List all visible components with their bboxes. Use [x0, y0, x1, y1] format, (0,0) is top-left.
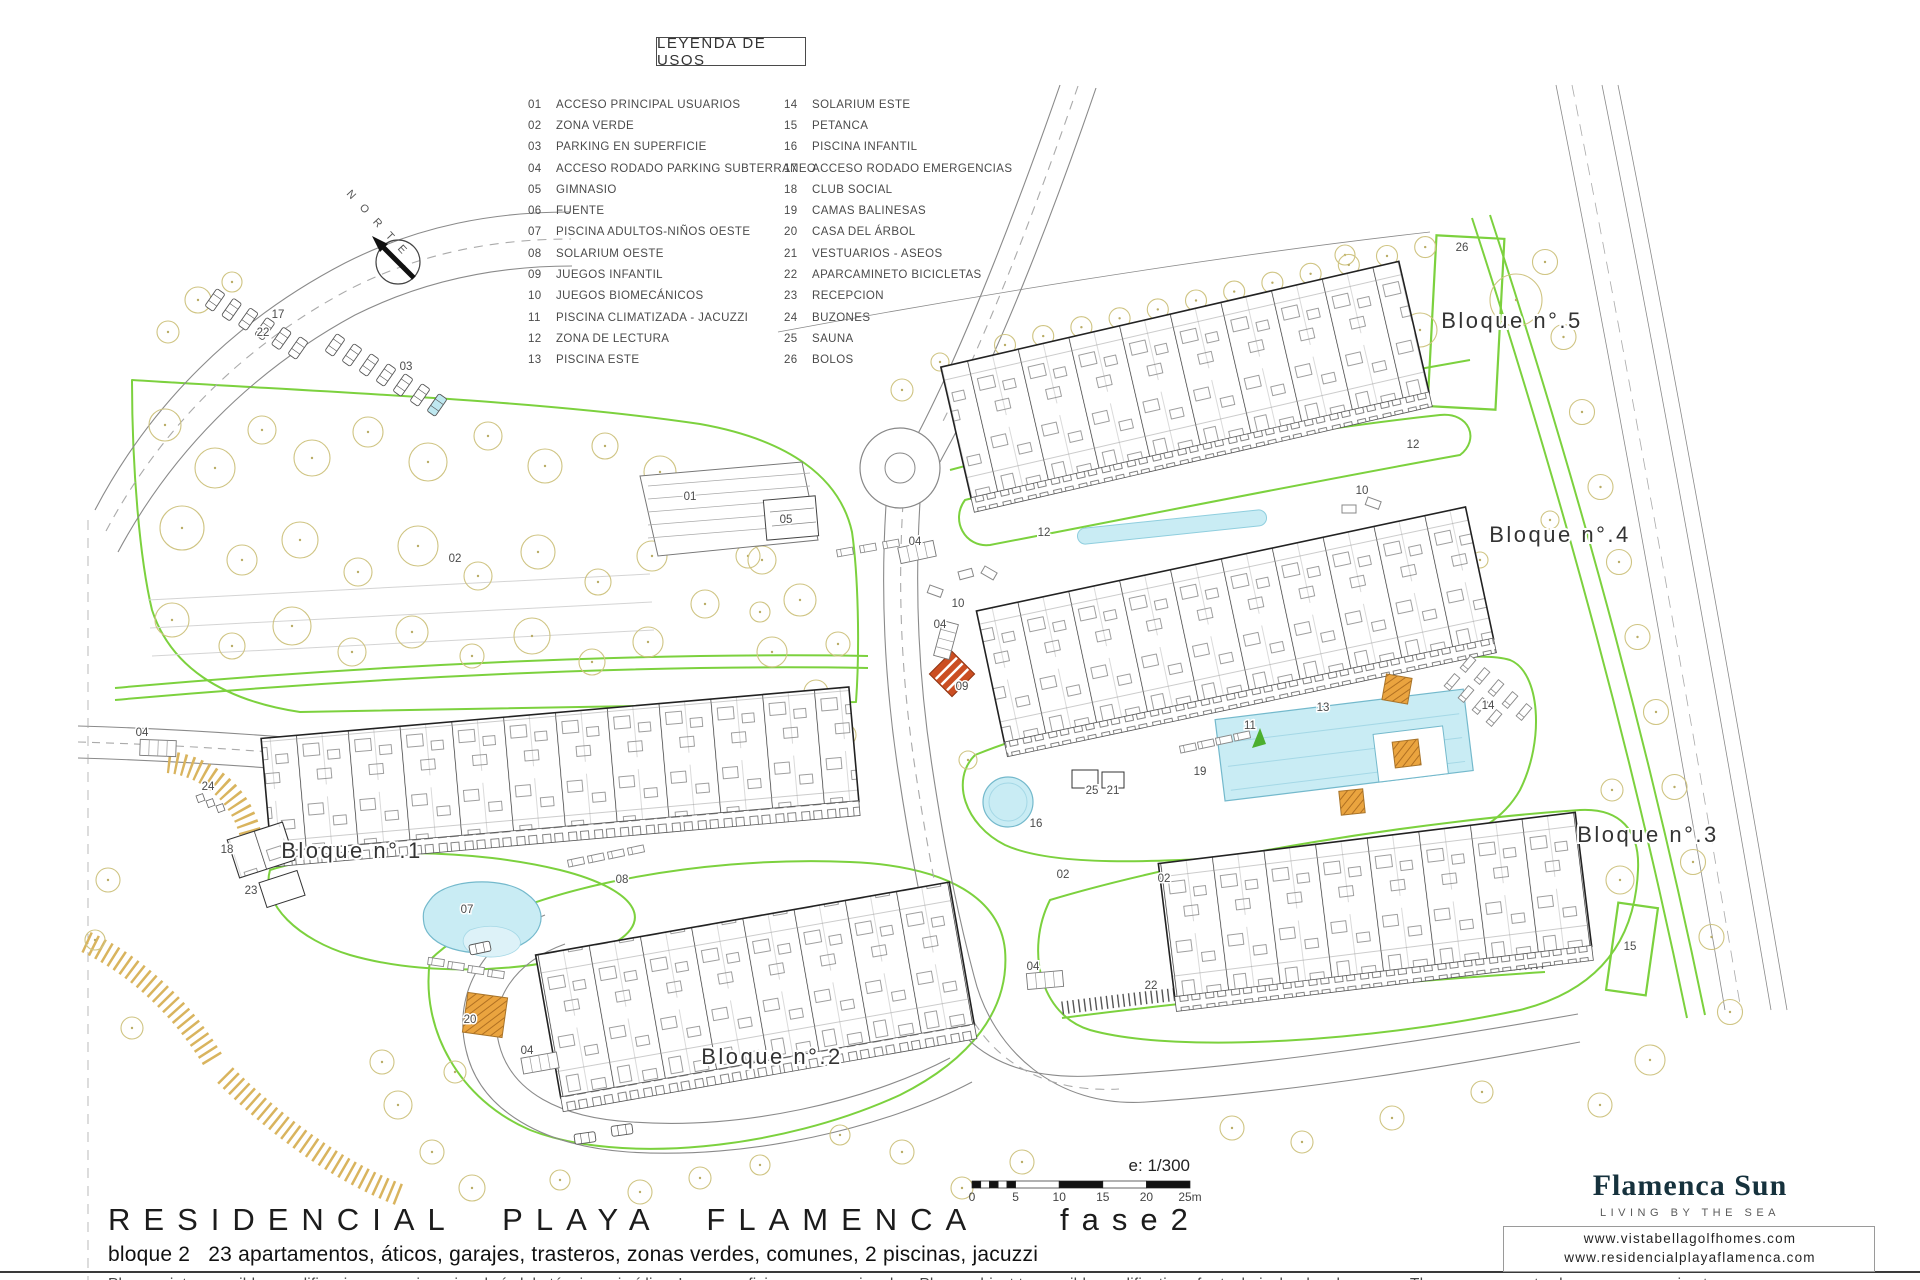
project-title: RESIDENCIAL PLAYA FLAMENCA: [108, 1202, 979, 1238]
road: [118, 266, 572, 552]
plan-shape: [488, 969, 505, 978]
legend-item: 07PISCINA ADULTOS-NIÑOS OESTE: [528, 222, 816, 243]
legend-item-number: 08: [528, 248, 556, 260]
lounger-icon: [627, 845, 644, 855]
garden-row-line: [148, 574, 650, 600]
plan-shape: [381, 1061, 383, 1063]
legend-item-number: 04: [528, 163, 556, 175]
tree-icon: [353, 417, 383, 447]
tree-icon: [1533, 250, 1558, 275]
buzones-icon: [216, 804, 225, 813]
lounger-icon: [488, 969, 505, 978]
plan-shape: [376, 364, 396, 387]
plan-shape: [1021, 1161, 1023, 1163]
plan-shape: [1481, 1091, 1483, 1093]
plan-shape: [1516, 704, 1532, 721]
legend-col-right: 14SOLARIUM ESTE15PETANCA16PISCINA INFANT…: [784, 94, 1012, 371]
tree-icon: [1588, 475, 1613, 500]
legend-item-label: PISCINA ESTE: [556, 354, 639, 366]
plan-shape: [1301, 1141, 1303, 1143]
plan-shape: [1271, 282, 1273, 284]
legend-item: 25SAUNA: [784, 328, 1012, 349]
brand-tagline: LIVING BY THE SEA: [1500, 1207, 1880, 1219]
legend-item-number: 10: [528, 290, 556, 302]
garden-row-line: [150, 602, 652, 628]
legend-item-number: 26: [784, 354, 812, 366]
buzones-icon: [206, 799, 215, 808]
logo-petal: [1649, 1095, 1683, 1130]
plan-shape: [131, 1027, 133, 1029]
plan-shape: [1692, 861, 1694, 863]
plan-shape: [197, 299, 199, 301]
tree-icon: [474, 422, 502, 450]
sun-swirl-logo-icon: [1630, 1055, 1750, 1167]
tree-icon: [528, 449, 562, 483]
green-zone-boundary: [115, 655, 868, 688]
logo-petal: [1635, 1071, 1677, 1121]
plan-shape: [351, 651, 353, 653]
legend-item-number: 15: [784, 120, 812, 132]
tree-icon: [1415, 237, 1436, 258]
plan-shape: [427, 461, 429, 463]
plan-shape: [1197, 739, 1214, 749]
plan-marker: 02: [1158, 873, 1171, 885]
plan-shape: [704, 603, 706, 605]
plan-shape: [961, 1187, 963, 1189]
legend-item-label: SOLARIUM OESTE: [556, 248, 664, 260]
plan-marker: 03: [400, 361, 413, 373]
lounger-icon: [1474, 668, 1490, 685]
legend-item: 17ACCESO RODADO EMERGENCIAS: [784, 158, 1012, 179]
plan-shape: [759, 611, 761, 613]
road: [1572, 85, 1741, 1010]
plan-marker: 22: [1145, 980, 1158, 992]
plan-shape: [288, 337, 308, 360]
exercise-equipment-icon: [1365, 497, 1381, 509]
plan-shape: [1391, 1117, 1393, 1119]
plan-marker: 10: [952, 598, 965, 610]
legend-item-label: BOLOS: [812, 354, 854, 366]
plan-shape: [591, 661, 593, 663]
legend-item-label: FUENTE: [556, 205, 604, 217]
legend-item-number: 14: [784, 99, 812, 111]
logo-petal: [1680, 1117, 1714, 1152]
pool-infantil: [983, 777, 1033, 827]
plan-shape: [1309, 273, 1311, 275]
lounger-icon: [883, 539, 900, 549]
logo-petal: [1656, 1123, 1710, 1167]
tree-icon: [757, 637, 787, 667]
tree-icon: [585, 569, 611, 595]
plan-marker: 14: [1482, 700, 1495, 712]
plan-shape: [1444, 674, 1460, 691]
plan-shape: [1619, 879, 1621, 881]
legend-item-label: VESTUARIOS - ASEOS: [812, 248, 943, 260]
legend-item: 01ACCESO PRINCIPAL USUARIOS: [528, 94, 816, 115]
plan-shape: [1419, 329, 1421, 331]
tree-icon: [691, 590, 719, 618]
tree-icon: [830, 1125, 850, 1145]
plan-marker: 26: [1456, 242, 1469, 254]
plan-shape: [659, 471, 661, 473]
plan-shape: [597, 581, 599, 583]
pergola-icon: [1339, 789, 1365, 815]
plan-shape: [397, 1104, 399, 1106]
block-label: Bloque n°.2: [701, 1044, 843, 1069]
car-icon: [410, 384, 430, 407]
lounger-icon: [567, 857, 584, 867]
plan-shape: [972, 1181, 981, 1188]
plan-shape: [1080, 326, 1082, 328]
legend-item: 05GIMNASIO: [528, 179, 816, 200]
car-icon: [393, 374, 413, 397]
plan-marker: 02: [1057, 869, 1070, 881]
plan-shape: [771, 651, 773, 653]
legend-item: 14SOLARIUM ESTE: [784, 94, 1012, 115]
plan-shape: [471, 1187, 473, 1189]
legend-item-label: PARKING EN SUPERFICIE: [556, 141, 707, 153]
building-block-2: [536, 882, 977, 1112]
legend-item-number: 06: [528, 205, 556, 217]
plan-marker: 04: [909, 536, 922, 548]
plan-shape: [1103, 1181, 1147, 1188]
legend-item-number: 13: [528, 354, 556, 366]
roundabout-island: [885, 453, 915, 483]
plan-shape: [1710, 936, 1712, 938]
plan-shape: [214, 467, 216, 469]
car-icon: [359, 354, 379, 377]
block-label: Bloque n°.3: [1577, 822, 1719, 847]
tree-icon: [1699, 925, 1724, 950]
plan-shape: [989, 1181, 998, 1188]
road: [106, 239, 571, 531]
legend-item-label: SAUNA: [812, 333, 854, 345]
tree-icon: [248, 416, 276, 444]
plan-shape: [1059, 1181, 1103, 1188]
legend-item-number: 23: [784, 290, 812, 302]
plan-shape: [967, 759, 969, 761]
legend-item-label: ZONA VERDE: [556, 120, 634, 132]
plan-shape: [431, 1151, 433, 1153]
plan-shape: [574, 1132, 596, 1145]
legend-item-number: 03: [528, 141, 556, 153]
tree-icon: [1644, 700, 1669, 725]
tree-icon: [891, 379, 913, 401]
tree-icon: [1718, 1000, 1743, 1025]
plan-shape: [1729, 1011, 1731, 1013]
legend-item-label: PETANCA: [812, 120, 868, 132]
tree-icon: [155, 603, 189, 637]
garage-ramp-icon: [1026, 970, 1063, 989]
building-block-3: [1158, 812, 1593, 1011]
legend-item-number: 19: [784, 205, 812, 217]
tree-icon: [384, 1091, 412, 1119]
tree-icon: [370, 1050, 394, 1074]
tree-icon: [750, 602, 770, 622]
tree-icon: [273, 607, 311, 645]
tree-icon: [750, 1155, 770, 1175]
tree-icon: [550, 1170, 570, 1190]
plan-shape: [1655, 711, 1657, 713]
tree-icon: [1681, 850, 1706, 875]
legend-item: 26BOLOS: [784, 350, 1012, 371]
legend-item-number: 22: [784, 269, 812, 281]
lounger-icon: [1516, 704, 1532, 721]
tree-icon: [464, 562, 492, 590]
plan-shape: [181, 527, 183, 529]
garage-ramp-icon: [140, 739, 177, 756]
brand-url-golfhomes[interactable]: www.vistabellagolfhomes.com: [1500, 1229, 1880, 1248]
plan-shape: [471, 655, 473, 657]
tree-icon: [890, 1140, 914, 1164]
plan-shape: [359, 354, 379, 377]
plan-shape: [1488, 680, 1504, 697]
legend-item: 13PISCINA ESTE: [528, 350, 816, 371]
legend-item: 12ZONA DE LECTURA: [528, 328, 816, 349]
legend-item: 21VESTUARIOS - ASEOS: [784, 243, 1012, 264]
logo-petal: [1700, 1082, 1750, 1137]
legend-item: 11PISCINA CLIMATIZADA - JACUZZI: [528, 307, 816, 328]
plan-shape: [271, 327, 291, 350]
ramp-hatch: [86, 942, 214, 1062]
plan-shape: [311, 457, 313, 459]
legend-item-number: 09: [528, 269, 556, 281]
plan-shape: [410, 384, 430, 407]
lounger-icon: [468, 965, 485, 974]
plan-shape: [531, 635, 533, 637]
tree-icon: [1625, 625, 1650, 650]
lounger-icon: [1444, 674, 1460, 691]
plan-shape: [454, 1071, 456, 1073]
legend-item-label: ACCESO RODADO EMERGENCIAS: [812, 163, 1012, 175]
plan-marker: 04: [1027, 961, 1040, 973]
plan-shape: [1146, 1181, 1190, 1188]
plan-shape: [559, 1179, 561, 1181]
plan-marker: 12: [1407, 439, 1420, 451]
tree-icon: [149, 409, 181, 441]
tree-icon: [826, 632, 850, 656]
lounger-icon: [837, 547, 854, 557]
legend-item-number: 20: [784, 226, 812, 238]
legend-item-number: 11: [528, 312, 556, 324]
block-label: Bloque n°.5: [1441, 308, 1583, 333]
plan-shape: [1618, 561, 1620, 563]
logo-petal: [1654, 1055, 1707, 1103]
tree-icon: [409, 443, 447, 481]
tree-icon: [1471, 1081, 1493, 1103]
legend-item: 19CAMAS BALINESAS: [784, 200, 1012, 221]
legend-item-number: 21: [784, 248, 812, 260]
legend-item-number: 16: [784, 141, 812, 153]
plan-shape: [1562, 336, 1564, 338]
plan-shape: [567, 857, 584, 867]
legend-item-label: JUEGOS BIOMECÁNICOS: [556, 290, 704, 302]
plan-shape: [759, 1164, 761, 1166]
tree-icon: [1570, 400, 1595, 425]
legend-item: 06FUENTE: [528, 200, 816, 221]
legend-item-number: 25: [784, 333, 812, 345]
legend-item-number: 07: [528, 226, 556, 238]
buzones-icon: [196, 794, 205, 803]
plan-shape: [611, 1124, 633, 1137]
tree-icon: [396, 616, 428, 648]
tree-icon: [344, 558, 372, 586]
scale-tick-label: 5: [1012, 1190, 1019, 1204]
tree-icon: [459, 1175, 485, 1201]
legend-item-label: APARCAMINETO BICICLETAS: [812, 269, 982, 281]
plan-shape: [1424, 246, 1426, 248]
plan-marker: 15: [1624, 941, 1637, 953]
legend-item-label: PISCINA ADULTOS-NIÑOS OESTE: [556, 226, 750, 238]
site-plan-document: N O R T Ee: 1/3000510152025mBloque n°.1B…: [0, 0, 1920, 1280]
plan-shape: [1042, 335, 1044, 337]
legend-item: 22APARCAMINETO BICICLETAS: [784, 264, 1012, 285]
tree-icon: [157, 321, 179, 343]
plan-shape: [342, 344, 362, 367]
plan-shape: [799, 599, 801, 601]
plan-marker: 23: [245, 885, 258, 897]
legend-item-number: 24: [784, 312, 812, 324]
legend-item-number: 01: [528, 99, 556, 111]
tree-icon: [294, 440, 330, 476]
plan-shape: [325, 334, 345, 357]
pergola-icon: [1392, 739, 1421, 768]
car-icon: [325, 334, 345, 357]
car-icon: [271, 327, 291, 350]
plan-shape: [651, 555, 653, 557]
plan-marker: 25: [1086, 785, 1099, 797]
recepcion-building: [259, 870, 305, 907]
lounger-icon: [607, 849, 624, 859]
plan-marker: 09: [956, 681, 969, 693]
tree-icon: [592, 433, 618, 459]
legend-item-number: 12: [528, 333, 556, 345]
north-arrow: N O R T E: [344, 188, 420, 284]
plan-shape: [761, 559, 763, 561]
legend-item-label: ACCESO PRINCIPAL USUARIOS: [556, 99, 740, 111]
plan-marker: 19: [1194, 766, 1207, 778]
plan-shape: [627, 845, 644, 855]
plan-shape: [901, 389, 903, 391]
brand-url-playaflamenca[interactable]: www.residencialplayaflamenca.com: [1500, 1248, 1880, 1267]
plan-marker: 08: [616, 874, 629, 886]
plan-shape: [231, 281, 233, 283]
plan-shape: [1348, 264, 1350, 266]
legend-item-number: 02: [528, 120, 556, 132]
plan-shape: [241, 559, 243, 561]
plan-shape: [587, 853, 604, 863]
plan-shape: [1179, 743, 1196, 753]
car-icon: [221, 298, 241, 321]
plan-shape: [171, 619, 173, 621]
tree-icon: [398, 526, 438, 566]
lounger-icon: [1488, 680, 1504, 697]
lounger-icon: [587, 853, 604, 863]
car-icon: [376, 364, 396, 387]
logo-petal: [1677, 1071, 1712, 1102]
tree-icon: [195, 448, 235, 488]
plan-marker: 12: [1038, 527, 1051, 539]
plan-shape: [164, 424, 166, 426]
tree-icon: [748, 546, 776, 574]
tree-icon: [1380, 1106, 1404, 1130]
plan-shape: [411, 631, 413, 633]
legend-item-label: PISCINA CLIMATIZADA - JACUZZI: [556, 312, 748, 324]
tree-icon: [338, 638, 366, 666]
plan-shape: [604, 445, 606, 447]
lounger-icon: [1179, 743, 1196, 753]
plan-shape: [647, 641, 649, 643]
plan-shape: [477, 575, 479, 577]
plan-marker: 01: [684, 491, 697, 503]
plan-marker: 24: [202, 781, 215, 793]
plan-shape: [1233, 290, 1235, 292]
plan-marker: 04: [934, 619, 947, 631]
scale-ratio: e: 1/300: [1129, 1156, 1190, 1175]
tree-icon: [1607, 550, 1632, 575]
plan-shape: [1474, 668, 1490, 685]
plan-marker: 02: [449, 553, 462, 565]
water-feature: [1077, 509, 1268, 545]
plan-shape: [1486, 710, 1502, 727]
plan-shape: [221, 298, 241, 321]
tree-icon: [1220, 1116, 1244, 1140]
plan-shape: [1118, 317, 1120, 319]
tree-icon: [1601, 779, 1623, 801]
plan-shape: [1195, 299, 1197, 301]
exercise-equipment-icon: [1342, 505, 1356, 513]
project-description: bloque 2 23 apartamentos, áticos, garaje…: [108, 1243, 1038, 1267]
legend-item-label: RECEPCION: [812, 290, 884, 302]
plan-shape: [544, 465, 546, 467]
legend-item-label: CAMAS BALINESAS: [812, 205, 926, 217]
plan-shape: [607, 849, 624, 859]
ramp-hatch: [225, 1075, 400, 1195]
tree-icon: [222, 272, 242, 292]
phase-label: fase2: [1060, 1202, 1201, 1238]
plan-shape: [231, 645, 233, 647]
legend-item: 23RECEPCION: [784, 286, 1012, 307]
plan-shape: [1016, 1181, 1060, 1188]
legend-item: 03PARKING EN SUPERFICIE: [528, 137, 816, 158]
plan-shape: [417, 545, 419, 547]
plan-shape: [1386, 255, 1388, 257]
legend-item: 20CASA DEL ÁRBOL: [784, 222, 1012, 243]
plan-shape: [901, 1151, 903, 1153]
logo-petal: [1630, 1104, 1684, 1153]
road: [1602, 85, 1771, 1010]
car-icon: [342, 344, 362, 367]
logo-petal: [1662, 1120, 1691, 1141]
plan-shape: [94, 939, 96, 941]
plan-shape: [1673, 786, 1675, 788]
plan-shape: [981, 1181, 990, 1188]
plan-shape: [837, 547, 854, 557]
logo-center: [1681, 1102, 1699, 1120]
plan-shape: [1636, 636, 1638, 638]
legend-item-label: ACCESO RODADO PARKING SUBTERRANEO: [556, 163, 816, 175]
plan-marker: 13: [1317, 702, 1330, 714]
plan-shape: [1544, 261, 1546, 263]
legend-title: LEYENDA DE USOS: [656, 37, 806, 66]
legend-item-label: GIMNASIO: [556, 184, 617, 196]
plan-marker: 04: [136, 727, 149, 739]
lounger-icon: [1197, 739, 1214, 749]
plan-shape: [537, 551, 539, 553]
tree-icon: [1291, 1131, 1313, 1153]
exercise-equipment-icon: [927, 585, 943, 597]
pergola-icon: [1382, 674, 1412, 704]
